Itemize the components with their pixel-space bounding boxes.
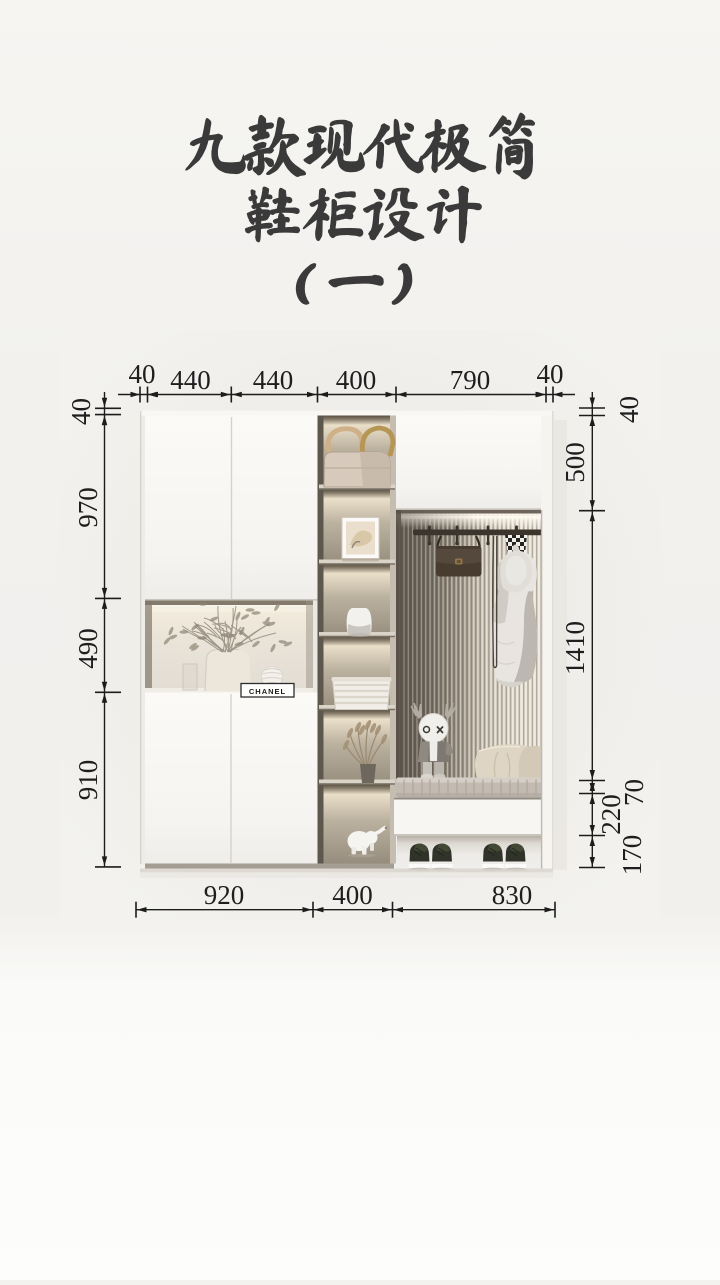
svg-text:400: 400 bbox=[332, 880, 373, 910]
svg-text:920: 920 bbox=[204, 880, 245, 910]
svg-text:CHANEL: CHANEL bbox=[249, 687, 286, 696]
svg-text:910: 910 bbox=[73, 760, 103, 801]
svg-text:970: 970 bbox=[73, 487, 103, 528]
svg-text:440: 440 bbox=[170, 365, 211, 395]
svg-text:40: 40 bbox=[537, 359, 564, 389]
svg-text:220: 220 bbox=[596, 794, 626, 835]
svg-text:790: 790 bbox=[450, 365, 491, 395]
svg-text:1410: 1410 bbox=[560, 621, 590, 675]
svg-text:500: 500 bbox=[560, 442, 590, 483]
svg-text:440: 440 bbox=[253, 365, 294, 395]
svg-text:40: 40 bbox=[129, 359, 156, 389]
svg-text:490: 490 bbox=[73, 628, 103, 669]
svg-text:830: 830 bbox=[492, 880, 533, 910]
svg-text:400: 400 bbox=[336, 365, 377, 395]
svg-text:170: 170 bbox=[617, 835, 647, 876]
svg-text:40: 40 bbox=[66, 398, 96, 425]
svg-text:40: 40 bbox=[614, 396, 644, 423]
